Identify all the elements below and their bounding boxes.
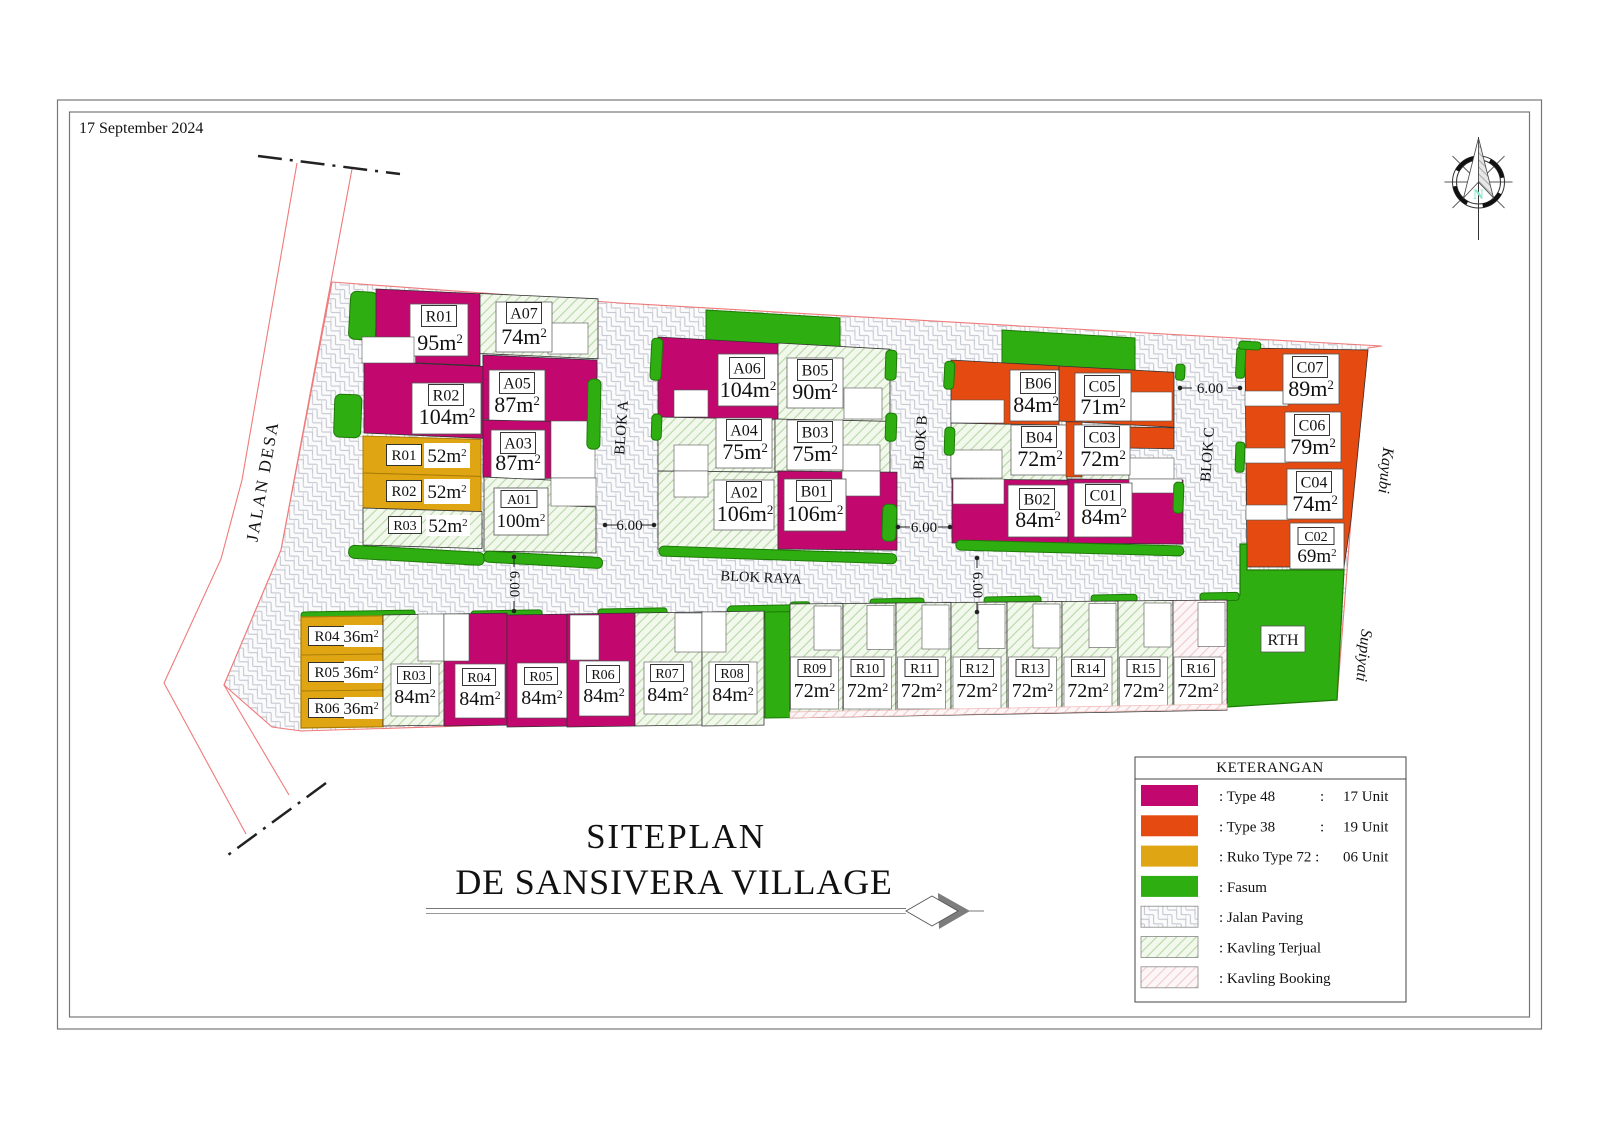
- svg-text:R02: R02: [391, 484, 416, 500]
- svg-text:72m2: 72m2: [1123, 680, 1165, 702]
- svg-text:52m2: 52m2: [427, 446, 466, 467]
- svg-text:R04: R04: [314, 629, 340, 645]
- svg-text:B05: B05: [802, 362, 829, 379]
- svg-text:17 September 2024: 17 September 2024: [79, 120, 203, 137]
- svg-text:A07: A07: [510, 305, 538, 322]
- svg-text:74m2: 74m2: [501, 324, 547, 349]
- svg-text:100m2: 100m2: [497, 511, 546, 532]
- svg-text:: Ruko Type 72 :: : Ruko Type 72 :: [1219, 850, 1319, 866]
- svg-text:SITEPLAN: SITEPLAN: [586, 817, 766, 856]
- svg-text:6.00: 6.00: [616, 518, 642, 534]
- svg-text:17 Unit: 17 Unit: [1343, 789, 1389, 805]
- svg-text:R14: R14: [1076, 662, 1099, 677]
- svg-text:C04: C04: [1301, 474, 1328, 491]
- svg-text:6.00: 6.00: [506, 571, 522, 597]
- svg-text:R06: R06: [591, 668, 614, 683]
- svg-text:RTH: RTH: [1267, 632, 1298, 649]
- svg-text:36m2: 36m2: [343, 699, 378, 718]
- svg-text:75m2: 75m2: [722, 439, 768, 464]
- svg-text::: :: [1320, 819, 1324, 835]
- svg-text:72m2: 72m2: [1177, 680, 1219, 702]
- svg-text:: Fasum: : Fasum: [1219, 880, 1267, 896]
- svg-text:19 Unit: 19 Unit: [1343, 819, 1389, 835]
- svg-text:75m2: 75m2: [792, 441, 838, 466]
- svg-text:C05: C05: [1089, 378, 1116, 395]
- svg-text:B03: B03: [802, 424, 829, 441]
- svg-text:84m2: 84m2: [1081, 504, 1127, 529]
- svg-text:87m2: 87m2: [494, 392, 540, 417]
- svg-text:36m2: 36m2: [343, 663, 378, 682]
- svg-text:R10: R10: [856, 662, 879, 677]
- svg-text:52m2: 52m2: [428, 516, 467, 537]
- svg-text:B02: B02: [1024, 491, 1051, 508]
- svg-text:C02: C02: [1304, 530, 1327, 545]
- svg-text:R04: R04: [467, 671, 490, 686]
- svg-text:72m2: 72m2: [1012, 680, 1054, 702]
- svg-text:R07: R07: [655, 667, 678, 682]
- svg-text:84m2: 84m2: [459, 688, 501, 710]
- svg-text:A06: A06: [733, 360, 761, 377]
- svg-text:C06: C06: [1299, 417, 1326, 434]
- svg-text:90m2: 90m2: [792, 379, 838, 404]
- svg-text:72m2: 72m2: [1067, 680, 1109, 702]
- svg-text:71m2: 71m2: [1080, 394, 1126, 419]
- svg-text:72m2: 72m2: [901, 680, 943, 702]
- svg-text:104m2: 104m2: [720, 377, 777, 402]
- svg-text:R01: R01: [391, 448, 416, 464]
- svg-text:6.00: 6.00: [1197, 381, 1223, 397]
- svg-text:72m2: 72m2: [847, 680, 889, 702]
- svg-text:74m2: 74m2: [1292, 491, 1338, 516]
- svg-text:R16: R16: [1186, 662, 1209, 677]
- svg-text:: Kavling Terjual: : Kavling Terjual: [1219, 941, 1321, 957]
- svg-text:84m2: 84m2: [647, 684, 689, 706]
- svg-text:6.00: 6.00: [969, 572, 985, 598]
- svg-text:R15: R15: [1132, 662, 1155, 677]
- svg-text:72m2: 72m2: [1080, 446, 1126, 471]
- svg-text:52m2: 52m2: [427, 482, 466, 503]
- svg-text:R03: R03: [393, 519, 416, 534]
- svg-text:C07: C07: [1297, 359, 1324, 376]
- svg-text:B04: B04: [1026, 429, 1053, 446]
- svg-text:84m2: 84m2: [1013, 392, 1059, 417]
- svg-text:R09: R09: [803, 662, 826, 677]
- svg-text:89m2: 89m2: [1288, 376, 1334, 401]
- svg-text:R12: R12: [965, 662, 988, 677]
- svg-text:95m2: 95m2: [417, 330, 463, 355]
- svg-text:R02: R02: [433, 387, 460, 404]
- svg-text:B01: B01: [801, 483, 828, 500]
- svg-text:72m2: 72m2: [1017, 446, 1063, 471]
- svg-text:69m2: 69m2: [1297, 546, 1336, 567]
- svg-text:DE SANSIVERA VILLAGE: DE SANSIVERA VILLAGE: [455, 862, 892, 902]
- svg-text:: Jalan Paving: : Jalan Paving: [1219, 910, 1304, 926]
- svg-text:A04: A04: [730, 422, 758, 439]
- svg-text:B06: B06: [1025, 375, 1052, 392]
- svg-text:N: N: [1473, 187, 1484, 203]
- svg-text:A05: A05: [503, 375, 531, 392]
- svg-text::: :: [1320, 789, 1324, 805]
- svg-text:JALAN DESA: JALAN DESA: [243, 419, 283, 543]
- svg-text:106m2: 106m2: [717, 501, 774, 526]
- svg-text:84m2: 84m2: [394, 686, 436, 708]
- svg-text:84m2: 84m2: [712, 684, 754, 706]
- svg-text:R11: R11: [910, 662, 933, 677]
- svg-text:84m2: 84m2: [583, 685, 625, 707]
- svg-text:A02: A02: [730, 484, 758, 501]
- svg-text:: Type 48: : Type 48: [1219, 789, 1275, 805]
- svg-text:06 Unit: 06 Unit: [1343, 850, 1389, 866]
- svg-text:C03: C03: [1089, 429, 1116, 446]
- svg-text:106m2: 106m2: [787, 501, 844, 526]
- svg-text:R05: R05: [529, 670, 552, 685]
- svg-text:R13: R13: [1021, 662, 1044, 677]
- svg-text:79m2: 79m2: [1290, 434, 1336, 459]
- svg-text:72m2: 72m2: [794, 680, 836, 702]
- svg-text:84m2: 84m2: [521, 687, 563, 709]
- svg-text:: Type 38: : Type 38: [1219, 819, 1275, 835]
- svg-text:R06: R06: [314, 701, 340, 717]
- svg-text:87m2: 87m2: [495, 450, 541, 475]
- svg-text:Supiyati: Supiyati: [1352, 629, 1374, 683]
- svg-text:R03: R03: [402, 669, 425, 684]
- svg-text:C01: C01: [1090, 487, 1117, 504]
- svg-text:R08: R08: [720, 667, 743, 682]
- svg-text:104m2: 104m2: [419, 404, 476, 429]
- svg-text:36m2: 36m2: [343, 627, 378, 646]
- svg-text:84m2: 84m2: [1015, 507, 1061, 532]
- svg-text:6.00: 6.00: [911, 520, 937, 536]
- svg-text:Kayubi: Kayubi: [1375, 446, 1397, 495]
- svg-text:A01: A01: [507, 493, 531, 508]
- svg-text:R01: R01: [426, 308, 453, 325]
- svg-text:72m2: 72m2: [956, 680, 998, 702]
- svg-text:: Kavling Booking: : Kavling Booking: [1219, 971, 1331, 987]
- svg-text:R05: R05: [314, 665, 339, 681]
- svg-text:KETERANGAN: KETERANGAN: [1216, 760, 1324, 776]
